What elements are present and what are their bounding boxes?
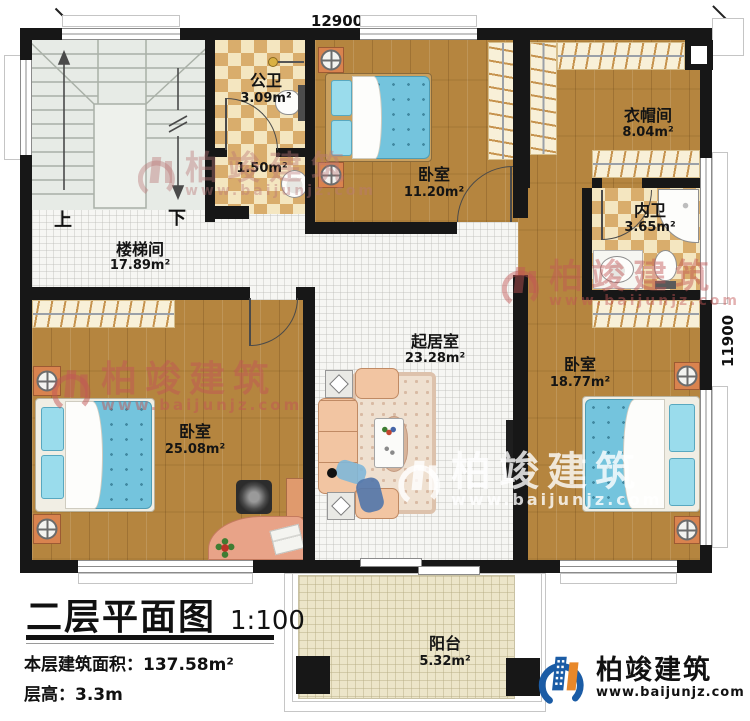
bed bbox=[325, 73, 432, 162]
room-area-stairwell: 17.89m² bbox=[90, 259, 190, 273]
staircase bbox=[30, 40, 213, 210]
window bbox=[360, 28, 477, 40]
flue-column-core bbox=[691, 46, 707, 64]
room-area-bedroom-right: 18.77m² bbox=[540, 376, 620, 390]
room-area-inner-bath: 3.65m² bbox=[610, 221, 690, 235]
drawing-scale: 1:100 bbox=[230, 606, 305, 636]
paper-holder-icon bbox=[268, 57, 278, 67]
lamp-icon bbox=[37, 371, 58, 392]
title-underline-thin bbox=[26, 643, 274, 644]
window-sill bbox=[560, 573, 677, 584]
wardrobe-strip bbox=[32, 300, 175, 328]
bed-quilt bbox=[352, 76, 382, 159]
dimension-right-label: 11900 bbox=[719, 315, 737, 367]
bed-pillow bbox=[41, 455, 64, 499]
title-underline bbox=[26, 635, 274, 640]
brand-logo-icon bbox=[538, 650, 588, 706]
nightstand bbox=[318, 162, 344, 188]
room-label-public-bath: 公卫 bbox=[226, 72, 306, 90]
wall bbox=[305, 40, 315, 234]
room-label-inner-bath: 内卫 bbox=[610, 202, 690, 220]
computer-monitor-icon bbox=[236, 480, 272, 514]
dimension-right: 11900 bbox=[708, 306, 748, 376]
door-leaf bbox=[510, 166, 512, 222]
window bbox=[560, 560, 677, 573]
wardrobe-strip bbox=[530, 42, 557, 155]
room-area-living-room: 23.28m² bbox=[395, 352, 475, 366]
window-sill bbox=[62, 15, 180, 27]
lamp-icon bbox=[321, 50, 342, 71]
window-sill bbox=[712, 152, 728, 304]
window-sill bbox=[360, 15, 477, 27]
side-table-inlay bbox=[331, 496, 351, 516]
window-sill bbox=[712, 386, 728, 548]
floor-plan: 12900 11900 bbox=[0, 0, 750, 721]
nightstand bbox=[33, 366, 61, 396]
wall bbox=[20, 287, 250, 300]
room-label-cloakroom: 衣帽间 bbox=[608, 107, 688, 125]
room-label-balcony: 阳台 bbox=[410, 635, 480, 653]
stairs-up-label: 上 bbox=[54, 206, 72, 232]
wall bbox=[305, 222, 457, 234]
room-area-bedroom-left: 25.08m² bbox=[155, 443, 235, 457]
bed-pillow bbox=[669, 404, 695, 452]
bed-quilt bbox=[623, 399, 665, 509]
bed-pillow bbox=[331, 80, 352, 116]
room-area-balcony: 5.32m² bbox=[410, 655, 480, 669]
wall bbox=[205, 40, 215, 222]
nightstand bbox=[318, 47, 344, 73]
side-table bbox=[325, 370, 353, 398]
bed bbox=[35, 398, 155, 512]
balcony-column bbox=[506, 658, 540, 696]
bed-pillow bbox=[669, 458, 695, 506]
washbasin-icon bbox=[600, 256, 634, 283]
room-area-public-bath: 3.09m² bbox=[226, 92, 306, 106]
wall bbox=[276, 148, 305, 157]
toilet-icon bbox=[654, 250, 677, 281]
title-block: 二层平面图 1:100 bbox=[26, 588, 305, 640]
wall bbox=[303, 287, 315, 560]
brand-name: 柏竣建筑 bbox=[596, 656, 745, 686]
nightstand bbox=[33, 514, 61, 544]
coffee-table bbox=[374, 418, 404, 468]
wall bbox=[642, 178, 700, 188]
paper-holder-bar bbox=[278, 61, 304, 63]
window-sill bbox=[712, 18, 744, 56]
side-table-inlay bbox=[329, 374, 349, 394]
bed bbox=[582, 396, 700, 512]
wall bbox=[215, 206, 249, 219]
room-label-bedroom-right: 卧室 bbox=[540, 356, 620, 374]
lamp-icon bbox=[677, 520, 698, 541]
window bbox=[20, 60, 32, 155]
plant-icon bbox=[214, 537, 236, 559]
wall bbox=[513, 275, 528, 560]
window bbox=[700, 158, 712, 300]
window bbox=[78, 560, 253, 573]
balcony-column bbox=[296, 656, 330, 694]
door-leaf bbox=[249, 298, 251, 346]
lamp-icon bbox=[37, 519, 58, 540]
wall bbox=[592, 178, 602, 188]
nightstand bbox=[674, 516, 700, 544]
door-leaf bbox=[601, 190, 603, 240]
brand-logo: 柏竣建筑 www.baijunjz.com bbox=[538, 650, 745, 706]
room-label-stairwell: 楼梯间 bbox=[90, 241, 190, 259]
page-title: 二层平面图 bbox=[26, 588, 216, 640]
lamp-icon bbox=[321, 165, 342, 186]
wardrobe-strip bbox=[592, 300, 700, 328]
bed-pillow bbox=[41, 407, 64, 451]
wall bbox=[513, 28, 530, 188]
wardrobe-strip bbox=[592, 150, 700, 178]
floor-height-line: 层高：3.3m bbox=[24, 680, 123, 705]
nightstand bbox=[674, 362, 700, 390]
room-area-bedroom-top: 11.20m² bbox=[394, 186, 474, 200]
side-table bbox=[327, 492, 355, 520]
sofa-seat bbox=[355, 368, 399, 399]
wall bbox=[513, 188, 528, 218]
wall bbox=[582, 290, 700, 300]
person-head bbox=[327, 468, 337, 478]
bed-pillow bbox=[331, 120, 352, 156]
sliding-door-panel bbox=[418, 566, 480, 575]
stairs-down-label: 下 bbox=[168, 204, 186, 230]
wall bbox=[582, 188, 592, 290]
sliding-door-panel bbox=[360, 558, 422, 567]
cabinet bbox=[286, 478, 304, 518]
floor-area-line: 本层建筑面积：137.58m² bbox=[24, 650, 234, 675]
brand-url: www.baijunjz.com bbox=[596, 685, 745, 700]
room-label-bedroom-top: 卧室 bbox=[394, 166, 474, 184]
room-label-living-room: 起居室 bbox=[395, 333, 475, 351]
toilet-tank bbox=[655, 281, 676, 289]
wardrobe-strip bbox=[557, 42, 685, 70]
room-label-bedroom-left: 卧室 bbox=[155, 423, 235, 441]
room-area-cloakroom: 8.04m² bbox=[608, 126, 688, 140]
window-sill bbox=[78, 573, 253, 584]
bed-quilt bbox=[65, 401, 103, 509]
room-area-wash-nook: 1.50m² bbox=[222, 162, 302, 176]
balcony-floor bbox=[298, 575, 515, 699]
lamp-icon bbox=[677, 366, 698, 387]
window bbox=[62, 28, 180, 40]
window bbox=[700, 390, 712, 545]
